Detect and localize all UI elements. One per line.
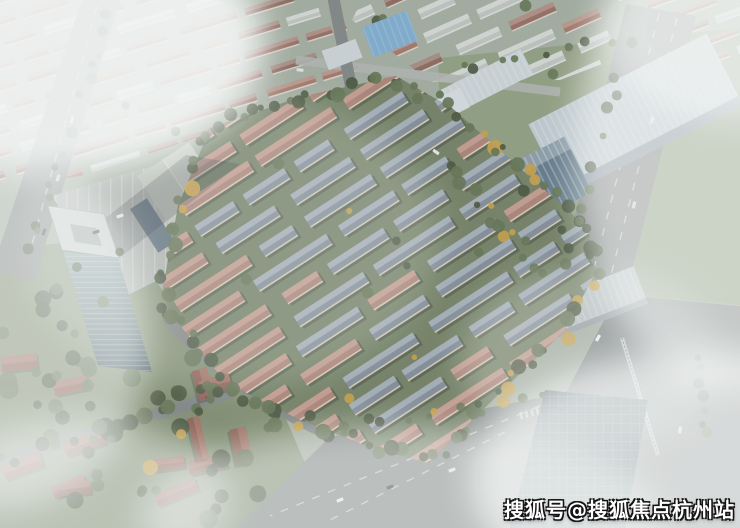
aerial-rendering xyxy=(0,0,740,528)
screenshot-root: 搜狐号@搜狐焦点杭州站 xyxy=(0,0,740,528)
watermark-text: 搜狐号@搜狐焦点杭州站 xyxy=(504,494,735,523)
haze-clouds xyxy=(0,0,740,528)
haze-veil xyxy=(0,0,740,528)
